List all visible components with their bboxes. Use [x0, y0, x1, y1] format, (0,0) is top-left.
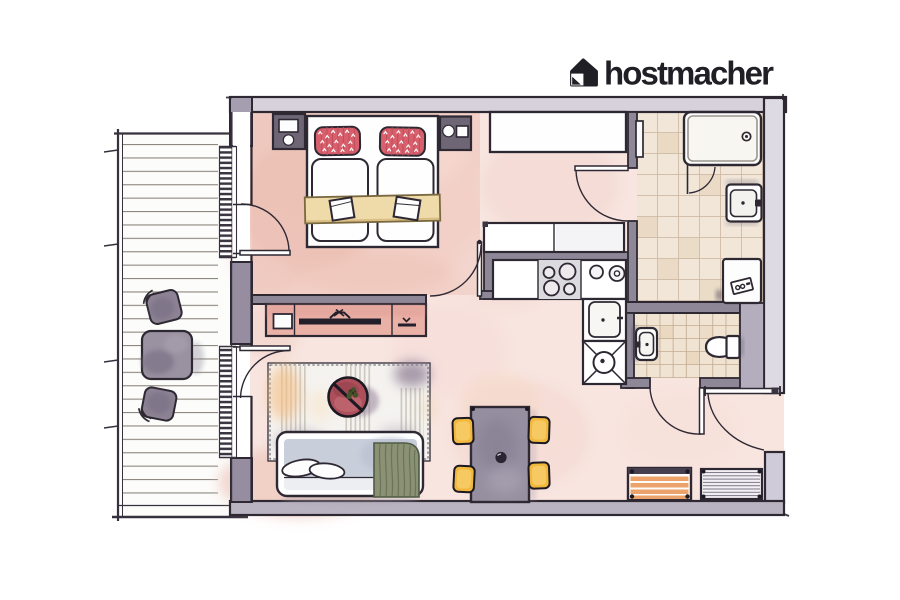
svg-text:hostmacher: hostmacher [604, 55, 774, 92]
